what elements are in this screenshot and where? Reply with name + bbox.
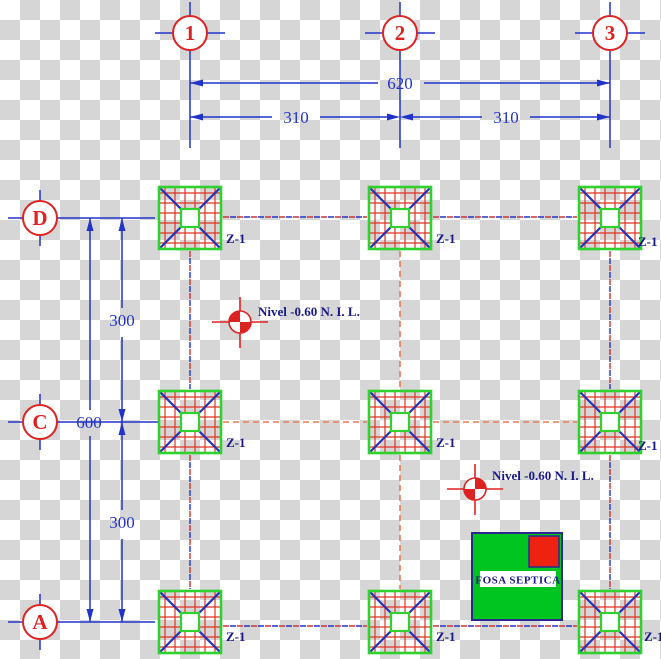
fosa-septica: FOSA SEPTICA xyxy=(472,533,562,620)
level-note-2: Nivel -0.60 N. I. L. xyxy=(492,468,594,483)
footing-label-a2: Z-1 xyxy=(436,629,456,644)
footing-label-d1: Z-1 xyxy=(226,231,246,246)
level-marker-1-quadrant-tl xyxy=(229,311,240,322)
left-dimensions: 600 300 300 xyxy=(76,218,135,622)
foundation-plan-drawing: 620 310 310 600 300 300 1 2 3 xyxy=(0,0,661,659)
footing-symbol-c2 xyxy=(369,391,431,453)
grid-bubbles-columns: 1 2 3 xyxy=(155,16,645,50)
dim-arrow-600-top xyxy=(87,218,94,231)
grid-bubble-2-label: 2 xyxy=(395,21,406,45)
footing-symbol-a3 xyxy=(579,591,641,653)
footing-symbol-c1 xyxy=(159,391,221,453)
footing-label-a3: Z-1 xyxy=(644,629,661,644)
dim-text-600: 600 xyxy=(76,413,102,432)
level-marker-2-quadrant-tr xyxy=(475,478,486,489)
dim-arrow-620-right xyxy=(597,80,610,87)
dim-text-620: 620 xyxy=(387,74,413,93)
footing-symbol-a1 xyxy=(159,591,221,653)
dim-text-300-lower: 300 xyxy=(109,513,135,532)
level-marker-1-quadrant-br xyxy=(240,322,251,333)
footing-symbol-a2 xyxy=(369,591,431,653)
dim-arrow-310l-left xyxy=(190,114,203,121)
grid-bubble-c-label: C xyxy=(32,410,47,434)
footing-label-c3: Z-1 xyxy=(638,438,658,453)
grid-bubble-3-label: 3 xyxy=(605,21,616,45)
footings: Z-1 Z-1 Z-1 Z-1 Z-1 Z-1 Z-1 Z-1 Z-1 xyxy=(159,187,661,653)
footing-symbol-d3 xyxy=(579,187,641,249)
dim-arrow-300l-bottom xyxy=(119,609,126,622)
footing-label-a1: Z-1 xyxy=(226,629,246,644)
footing-symbol-d2 xyxy=(369,187,431,249)
footing-label-c2: Z-1 xyxy=(436,435,456,450)
dim-arrow-310r-right xyxy=(597,114,610,121)
dim-text-310-left: 310 xyxy=(283,108,309,127)
dim-arrow-310r-left xyxy=(400,114,413,121)
fosa-septica-red-chamber xyxy=(529,536,559,567)
level-note-1: Nivel -0.60 N. I. L. xyxy=(258,304,360,319)
dim-arrow-300u-top xyxy=(119,218,126,231)
footing-label-c1: Z-1 xyxy=(226,435,246,450)
grid-bubbles-rows: D C A xyxy=(23,190,57,650)
dim-arrow-300u-bottom xyxy=(119,409,126,422)
foundation-plan-canvas: 620 310 310 600 300 300 1 2 3 xyxy=(0,0,661,659)
dim-arrow-620-left xyxy=(190,80,203,87)
footing-symbol-c3 xyxy=(579,391,641,453)
grid-bubble-a-label: A xyxy=(32,610,48,634)
fosa-septica-label: FOSA SEPTICA xyxy=(475,575,560,587)
dim-text-300-upper: 300 xyxy=(109,311,135,330)
level-marker-2: Nivel -0.60 N. I. L. xyxy=(447,464,594,515)
dim-arrow-600-bottom xyxy=(87,609,94,622)
grid-bubble-1-label: 1 xyxy=(185,21,196,45)
grid-bubble-d-label: D xyxy=(32,206,47,230)
level-marker-2-quadrant-bl xyxy=(464,489,475,500)
dim-arrow-300l-top xyxy=(119,422,126,435)
dim-arrow-310l-right xyxy=(387,114,400,121)
level-marker-1: Nivel -0.60 N. I. L. xyxy=(212,297,360,348)
footing-symbol-d1 xyxy=(159,187,221,249)
footing-label-d3: Z-1 xyxy=(638,234,658,249)
dim-text-310-right: 310 xyxy=(493,108,519,127)
footing-label-d2: Z-1 xyxy=(436,231,456,246)
